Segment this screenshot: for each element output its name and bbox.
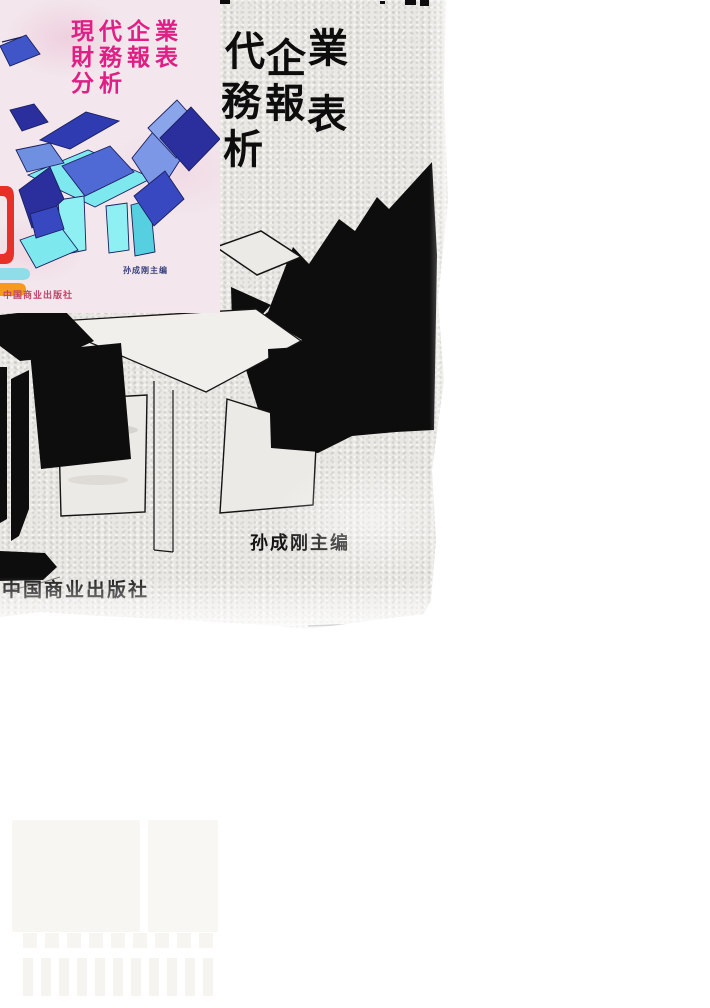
inset-title-line: 財務報表 bbox=[71, 47, 183, 70]
bottom-rule-dotted bbox=[236, 626, 306, 629]
scan-title-char: 企 bbox=[266, 39, 306, 79]
color-cover-inset: 現代企業 財務報表 分析 孙成刚主编 中国商业出版社 bbox=[0, 0, 220, 313]
showthrough-stripes bbox=[23, 933, 213, 948]
left-bottom-blob bbox=[0, 551, 57, 581]
left-thin-bar bbox=[0, 367, 7, 523]
smudge bbox=[68, 475, 128, 485]
corner-diamond bbox=[0, 35, 40, 66]
blue-diamond bbox=[40, 112, 119, 149]
scan-title-char: 報 bbox=[265, 84, 305, 124]
center-leg-lines bbox=[154, 381, 173, 552]
scan-title-char: 表 bbox=[307, 95, 347, 135]
showthrough-block bbox=[148, 820, 218, 932]
scan-author-text: 孙成刚主编 bbox=[250, 535, 350, 553]
inset-title-line: 分析 bbox=[71, 73, 127, 96]
inset-publisher-text: 中国商业出版社 bbox=[3, 292, 73, 301]
left-chair-black bbox=[30, 343, 131, 469]
blue-diamond bbox=[10, 104, 48, 131]
red-ring bbox=[0, 186, 14, 264]
showthrough-stripes bbox=[23, 958, 218, 996]
scan-edge-marks bbox=[215, 0, 429, 8]
scan-publisher-text: 中国商业出版社 bbox=[2, 581, 149, 600]
scan-title-char: 業 bbox=[308, 29, 348, 69]
inset-author-text: 孙成刚主编 bbox=[123, 267, 168, 275]
scan-title-char: 代 bbox=[225, 32, 265, 72]
right-chair-black bbox=[268, 341, 398, 452]
inset-title-line: 現代企業 bbox=[71, 21, 183, 44]
bottom-rule bbox=[308, 622, 426, 626]
cyan-bar bbox=[0, 268, 30, 280]
scan-title-char: 務 bbox=[221, 82, 261, 122]
scan-title-char: 析 bbox=[223, 130, 263, 170]
showthrough-block bbox=[12, 820, 140, 932]
left-thick-bar bbox=[11, 370, 29, 541]
cyan-leg bbox=[106, 203, 129, 253]
